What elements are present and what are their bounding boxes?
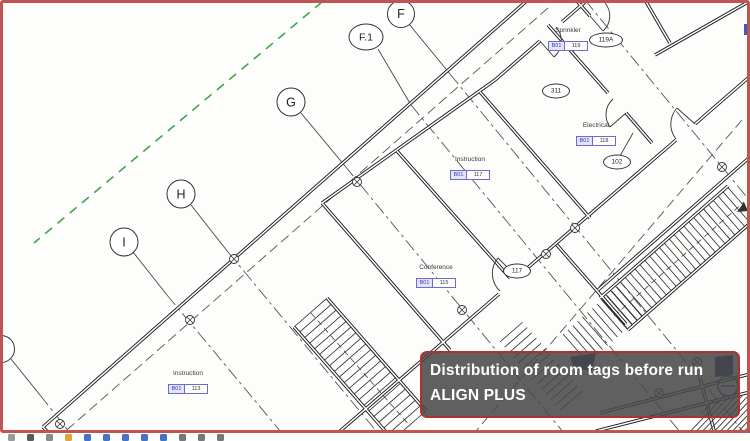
room-tag-box: B01113 (168, 384, 208, 394)
clipped-tag-icon (744, 24, 750, 35)
room-number: 119 (564, 42, 587, 50)
room-code: B01 (169, 385, 184, 393)
room-tag-conference[interactable]: Conference B01115 (416, 264, 456, 289)
room-tag-instruction-117[interactable]: Instruction B01117 (450, 156, 490, 181)
room-tag-box: B01117 (450, 170, 490, 180)
view-control-icon[interactable] (160, 434, 167, 441)
room-number: 113 (184, 385, 207, 393)
door-tag-102[interactable]: 102 (603, 155, 631, 170)
room-tag-box: B01119 (548, 41, 588, 51)
view-control-icon[interactable] (103, 434, 110, 441)
view-control-icon[interactable] (122, 434, 129, 441)
room-name: Instruction (450, 156, 490, 163)
view-control-icon[interactable] (65, 434, 72, 441)
room-number: 115 (432, 279, 455, 287)
grid-label: F (397, 7, 405, 21)
grid-bubble-G[interactable]: G (277, 88, 306, 117)
door-tag-117[interactable]: 117 (503, 264, 531, 279)
grid-label: I (122, 235, 125, 249)
room-tag-sprinkler[interactable]: Sprinkler B01119 (548, 27, 588, 52)
room-code: B01 (549, 42, 564, 50)
grid-bubble-I[interactable]: I (110, 228, 139, 257)
grid-bubble-F[interactable]: F (387, 0, 415, 28)
grid-label: F.1 (359, 31, 373, 43)
grid-leaders (11, 24, 633, 395)
grid-bubble-F1[interactable]: F.1 (349, 24, 384, 51)
room-tag-box: B01118 (576, 136, 616, 146)
view-control-icon[interactable] (198, 434, 205, 441)
caption-overlay: Distribution of room tags before run ALI… (420, 351, 740, 418)
view-control-icon[interactable] (46, 434, 53, 441)
caption-line1: Distribution of room tags before run (430, 358, 730, 383)
room-name: Sprinkler (548, 27, 588, 34)
room-tag-electrical[interactable]: Electrical B01118 (576, 122, 616, 147)
caption-line2: ALIGN PLUS (430, 383, 730, 408)
view-control-icon[interactable] (8, 434, 15, 441)
room-name: Conference (416, 264, 456, 271)
room-code: B01 (451, 171, 466, 179)
room-name: Electrical (576, 122, 616, 129)
room-tag-box: B01115 (416, 278, 456, 288)
view-control-icon[interactable] (84, 434, 91, 441)
door-tag-119A[interactable]: 119A (589, 33, 623, 48)
view-control-icon[interactable] (27, 434, 34, 441)
view-control-bar[interactable] (0, 433, 750, 438)
grid-label: G (286, 95, 296, 109)
room-code: B01 (417, 279, 432, 287)
room-number: 117 (466, 171, 489, 179)
room-number: 118 (592, 137, 615, 145)
door-tag-311[interactable]: 311 (542, 84, 570, 99)
grid-label: H (176, 187, 185, 201)
grid-bubble-H[interactable]: H (167, 180, 196, 209)
view-control-icon[interactable] (179, 434, 186, 441)
room-code: B01 (577, 137, 592, 145)
room-tag-instruction-113[interactable]: Instruction B01113 (168, 370, 208, 395)
view-control-icon[interactable] (217, 434, 224, 441)
door-swings (492, 3, 695, 291)
view-control-icon[interactable] (141, 434, 148, 441)
room-name: Instruction (168, 370, 208, 377)
